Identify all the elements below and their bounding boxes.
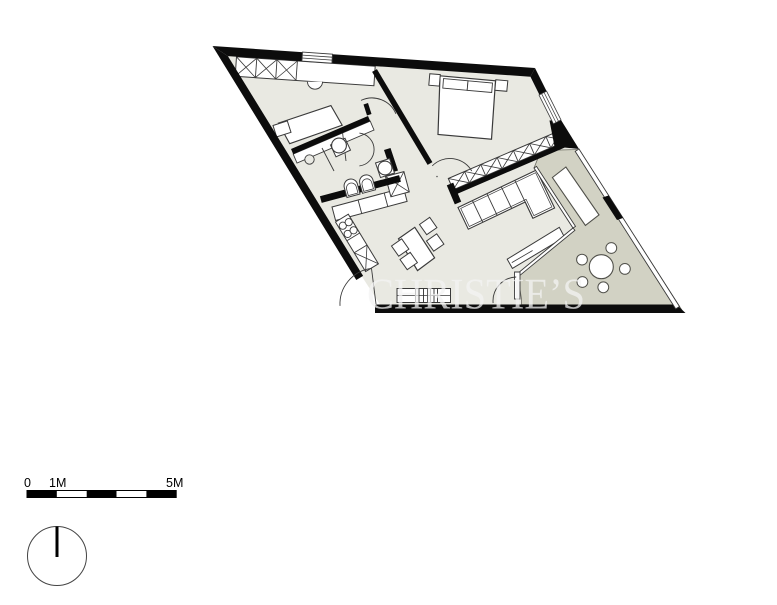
svg-text:1M: 1M xyxy=(49,476,66,490)
svg-text:0: 0 xyxy=(24,476,31,490)
svg-text:5M: 5M xyxy=(166,476,183,490)
